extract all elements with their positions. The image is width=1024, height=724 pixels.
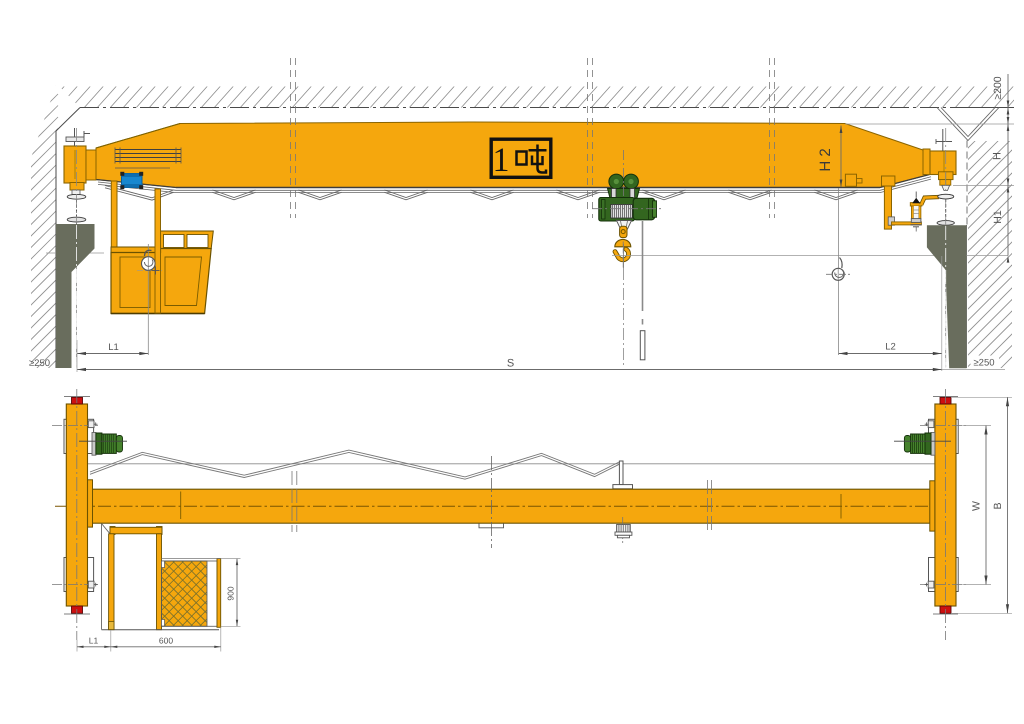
svg-text:900: 900: [226, 586, 236, 600]
svg-text:H: H: [992, 152, 1004, 160]
svg-text:L1: L1: [89, 636, 99, 646]
svg-text:1: 1: [493, 142, 510, 179]
svg-text:H 2: H 2: [817, 148, 834, 171]
svg-text:W: W: [971, 501, 983, 511]
svg-text:B: B: [992, 502, 1004, 509]
svg-text:L1: L1: [108, 342, 119, 353]
svg-text:H1: H1: [992, 210, 1004, 224]
svg-text:600: 600: [159, 636, 173, 646]
svg-text:L2: L2: [885, 342, 896, 353]
svg-text:≥200: ≥200: [992, 76, 1004, 99]
svg-text:≥250: ≥250: [973, 358, 994, 369]
svg-text:S: S: [507, 358, 514, 370]
svg-text:≥250: ≥250: [29, 358, 50, 369]
